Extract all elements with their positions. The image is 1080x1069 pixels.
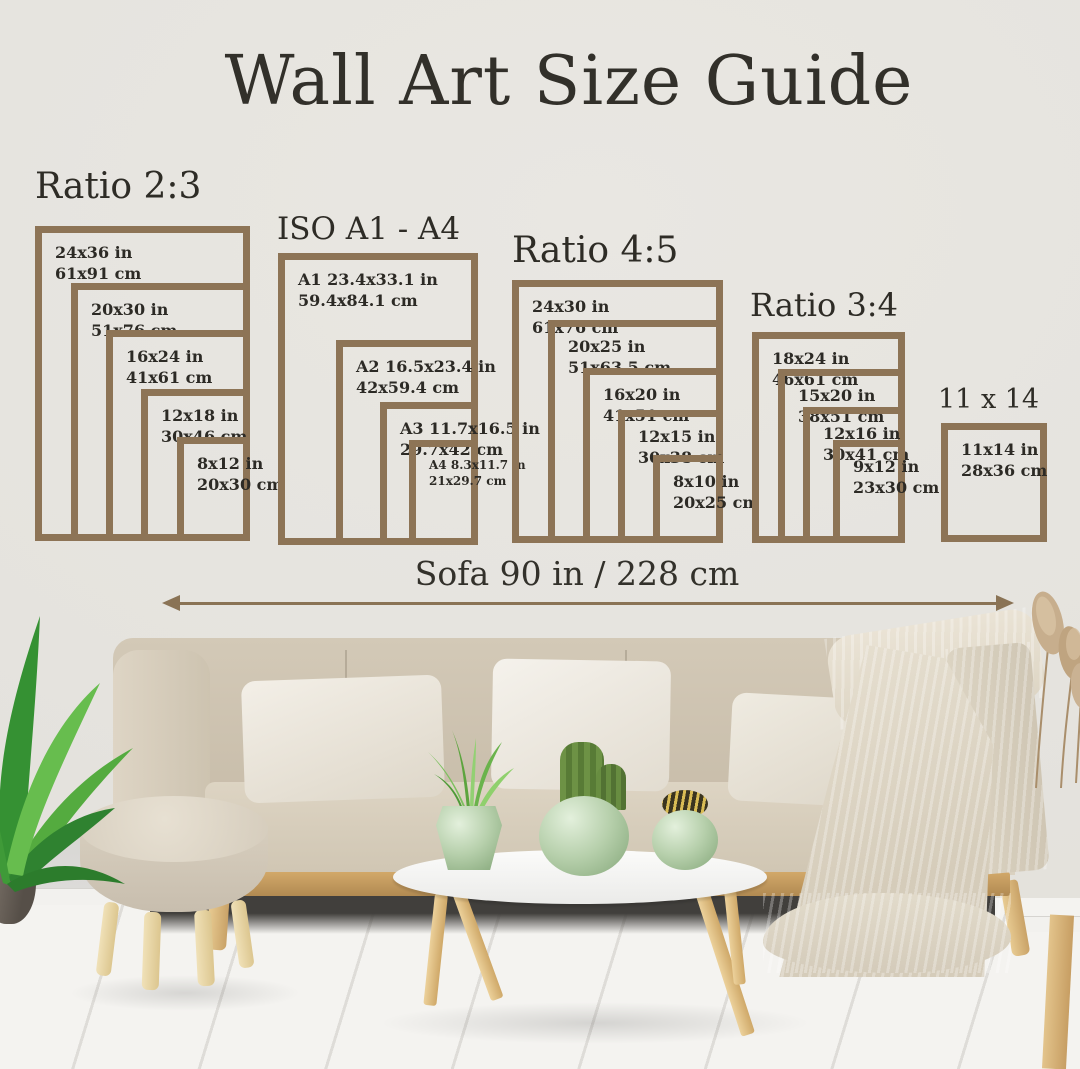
wall-art-size-guide-poster: Wall Art Size Guide Ratio 2:3 24x36 in61… <box>0 0 1080 1069</box>
size-inches: 8x12 in <box>197 454 283 475</box>
size-cm: 61x91 cm <box>55 264 141 285</box>
size-inches: 16x20 in <box>603 385 689 406</box>
size-inches: 12x15 in <box>638 427 724 448</box>
sofa-width-label: Sofa 90 in / 228 cm <box>415 554 740 593</box>
size-inches: 12x18 in <box>161 406 247 427</box>
ottoman-shadow <box>70 975 300 1011</box>
size-cm: 59.4x84.1 cm <box>298 291 438 312</box>
planter-pot-center <box>539 796 629 876</box>
size-inches: A2 16.5x23.4 in <box>356 357 496 378</box>
size-inches: 20x30 in <box>91 300 177 321</box>
size-inches: 24x30 in <box>532 297 618 318</box>
group-heading-iso: ISO A1 - A4 <box>277 211 460 247</box>
house-plant <box>0 598 135 898</box>
size-inches: 20x25 in <box>568 337 671 358</box>
group-heading-11x14: 11 x 14 <box>938 384 1039 415</box>
size-inches: 8x10 in <box>673 472 759 493</box>
size-cm: 23x30 cm <box>853 478 939 499</box>
planter-pot-left <box>436 806 502 870</box>
group-heading-ratio-4-5: Ratio 4:5 <box>512 230 678 271</box>
size-inches: 15x20 in <box>798 386 884 407</box>
size-inches: 9x12 in <box>853 457 939 478</box>
throw-blanket-floor-spill <box>763 893 1011 973</box>
size-frame-11x14: 11x14 in28x36 cm <box>941 423 1047 542</box>
size-inches: 24x36 in <box>55 243 141 264</box>
size-inches: 11x14 in <box>961 440 1047 461</box>
ottoman-leg <box>142 912 162 991</box>
size-cm: 41x61 cm <box>126 368 212 389</box>
size-frame-8x12: 8x12 in20x30 cm <box>177 437 250 541</box>
size-frame-9x12: 9x12 in23x30 cm <box>833 440 905 543</box>
size-cm: 20x25 cm <box>673 493 759 514</box>
size-cm: 42x59.4 cm <box>356 378 496 399</box>
size-frame-8x10: 8x10 in20x25 cm <box>653 455 723 543</box>
pampas-grass <box>1006 578 1080 798</box>
size-cm: 28x36 cm <box>961 461 1047 482</box>
group-heading-ratio-2-3: Ratio 2:3 <box>35 166 201 207</box>
arrow-left-icon <box>162 595 180 611</box>
size-inches: 18x24 in <box>772 349 858 370</box>
size-inches: A1 23.4x33.1 in <box>298 270 438 291</box>
group-heading-ratio-3-4: Ratio 3:4 <box>750 286 898 324</box>
size-inches: 16x24 in <box>126 347 212 368</box>
planter-pot-right <box>652 810 718 870</box>
size-cm: 20x30 cm <box>197 475 283 496</box>
throw-pillow-left <box>241 675 445 804</box>
size-frame-a4: A4 8.3x11.7 in21x29.7 cm <box>409 440 478 545</box>
sofa-width-arrow <box>178 602 998 605</box>
page-title: Wall Art Size Guide <box>225 42 914 121</box>
